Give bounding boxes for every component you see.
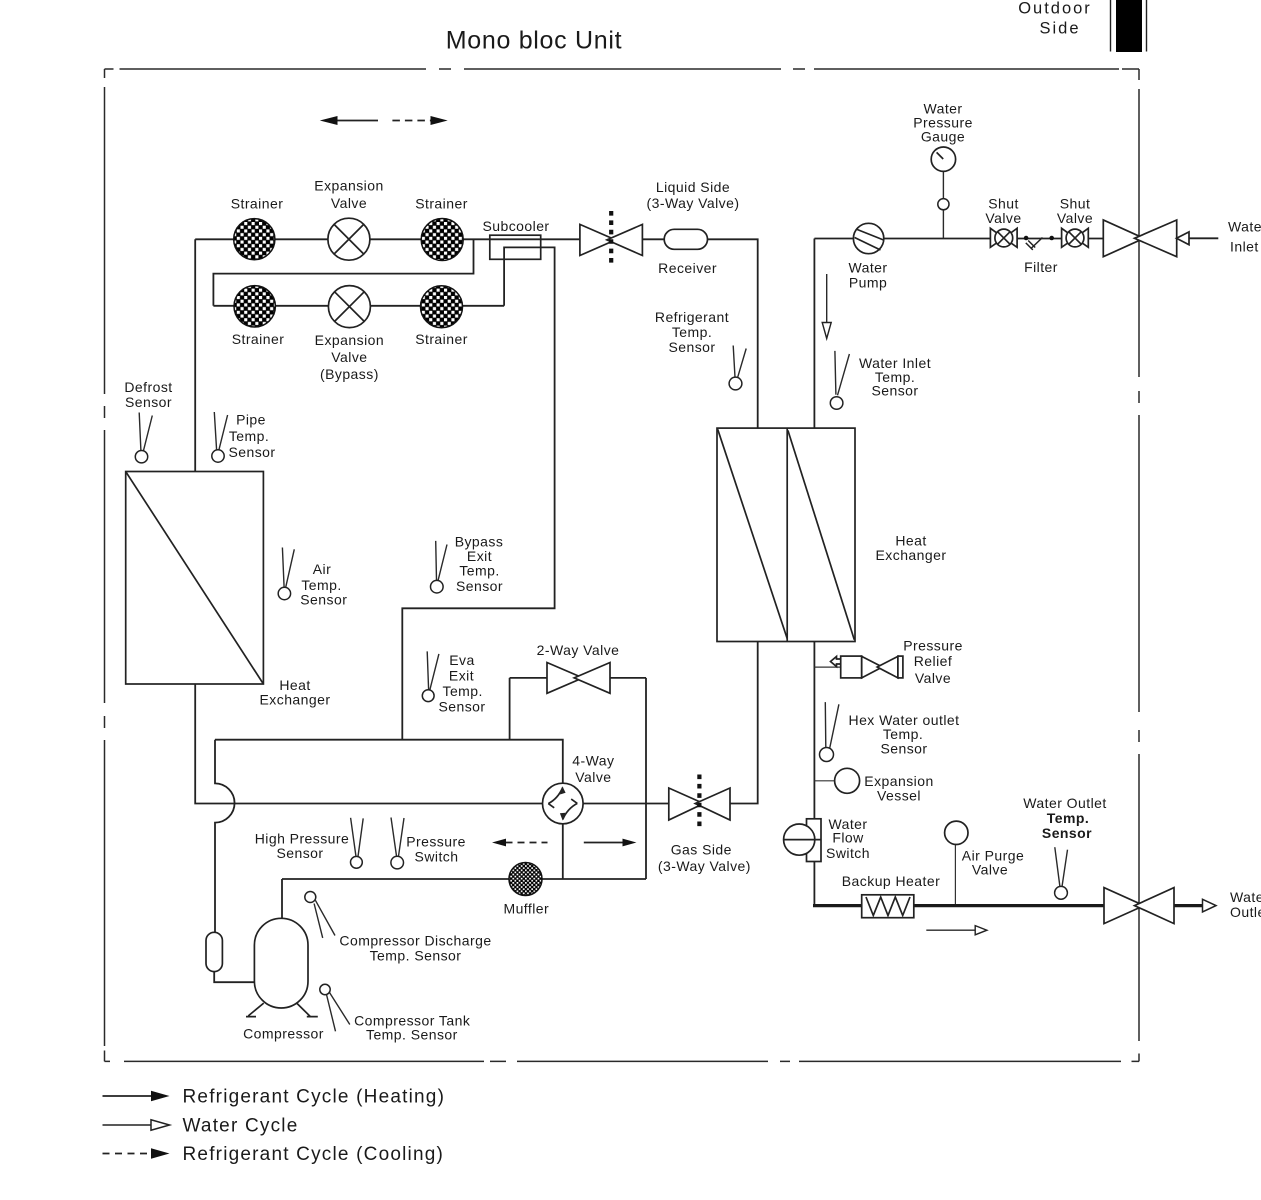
svg-text:Sensor: Sensor (438, 699, 485, 715)
svg-text:Strainer: Strainer (231, 196, 284, 212)
svg-text:Backup Heater: Backup Heater (842, 873, 940, 889)
svg-text:Mono bloc Unit: Mono bloc Unit (446, 27, 623, 55)
svg-text:Sensor: Sensor (880, 741, 927, 757)
svg-text:(3-Way Valve): (3-Way Valve) (647, 195, 740, 211)
svg-text:Temp.: Temp. (672, 324, 712, 340)
svg-text:(3-Way Valve): (3-Way Valve) (658, 858, 751, 874)
svg-text:Sensor: Sensor (300, 592, 347, 608)
svg-text:Sensor: Sensor (1042, 825, 1092, 841)
svg-text:2-Way Valve: 2-Way Valve (537, 642, 620, 658)
svg-text:Switch: Switch (415, 849, 459, 865)
svg-text:Vessel: Vessel (877, 788, 921, 804)
svg-text:Muffler: Muffler (503, 901, 549, 917)
svg-text:Refrigerant Cycle (Heating): Refrigerant Cycle (Heating) (183, 1087, 446, 1108)
svg-text:Switch: Switch (826, 845, 870, 861)
svg-text:Refrigerant: Refrigerant (655, 309, 729, 325)
svg-text:4-Way: 4-Way (572, 753, 614, 769)
svg-text:Valve: Valve (331, 349, 367, 365)
svg-text:Water: Water (848, 260, 887, 276)
svg-text:Pipe: Pipe (236, 412, 266, 428)
svg-text:Sensor: Sensor (125, 394, 172, 410)
svg-text:Expansion: Expansion (315, 332, 384, 348)
svg-text:Sensor: Sensor (276, 845, 323, 861)
svg-text:Compressor Discharge: Compressor Discharge (339, 933, 491, 949)
svg-text:Strainer: Strainer (232, 331, 285, 347)
svg-text:Filter: Filter (1024, 259, 1058, 275)
svg-text:Sensor: Sensor (668, 339, 715, 355)
svg-text:Valve: Valve (915, 670, 951, 686)
svg-text:Pressure: Pressure (903, 638, 963, 654)
svg-text:Strainer: Strainer (415, 196, 468, 212)
svg-text:Water Cycle: Water Cycle (183, 1116, 299, 1137)
svg-text:Side: Side (1039, 19, 1080, 37)
svg-text:Strainer: Strainer (415, 331, 468, 347)
svg-text:Receiver: Receiver (658, 260, 717, 276)
svg-text:Compressor: Compressor (243, 1025, 324, 1041)
svg-text:Gas Side: Gas Side (671, 842, 732, 858)
svg-text:Expansion: Expansion (314, 177, 383, 193)
svg-text:Valve: Valve (985, 210, 1021, 226)
svg-text:Inlet: Inlet (1230, 239, 1259, 255)
svg-text:Temp. Sensor: Temp. Sensor (370, 947, 462, 963)
svg-text:Sensor: Sensor (228, 444, 275, 460)
svg-text:Sensor: Sensor (456, 578, 503, 594)
svg-text:Water: Water (1228, 219, 1261, 235)
svg-text:Sensor: Sensor (871, 383, 918, 399)
svg-text:Outdoor: Outdoor (1018, 0, 1092, 17)
svg-text:Valve: Valve (1057, 210, 1093, 226)
svg-text:Pressure: Pressure (406, 834, 466, 850)
svg-text:Temp.: Temp. (1047, 810, 1089, 826)
svg-text:Water: Water (1230, 889, 1261, 905)
svg-text:(Bypass): (Bypass) (320, 366, 379, 382)
svg-text:Outlet: Outlet (1230, 904, 1261, 920)
svg-text:Valve: Valve (331, 195, 367, 211)
svg-text:Relief: Relief (914, 653, 953, 669)
svg-text:Eva: Eva (449, 652, 474, 668)
svg-text:Defrost: Defrost (124, 379, 172, 395)
svg-text:Flow: Flow (832, 830, 864, 846)
svg-text:Valve: Valve (575, 769, 611, 785)
svg-text:Water Outlet: Water Outlet (1023, 795, 1106, 811)
svg-text:Gauge: Gauge (921, 129, 965, 145)
svg-text:Exit: Exit (449, 668, 474, 684)
svg-text:Temp. Sensor: Temp. Sensor (366, 1027, 458, 1043)
svg-text:Pump: Pump (849, 275, 887, 291)
svg-text:Exchanger: Exchanger (876, 547, 947, 563)
svg-text:Air: Air (313, 561, 331, 577)
svg-text:Temp.: Temp. (229, 428, 269, 444)
svg-text:Exchanger: Exchanger (260, 692, 331, 708)
svg-text:Subcooler: Subcooler (482, 218, 549, 234)
svg-text:Temp.: Temp. (459, 563, 499, 579)
svg-text:Refrigerant Cycle (Cooling): Refrigerant Cycle (Cooling) (183, 1144, 445, 1165)
svg-text:Liquid Side: Liquid Side (656, 179, 730, 195)
svg-text:Valve: Valve (972, 862, 1008, 878)
svg-text:Temp.: Temp. (443, 683, 483, 699)
